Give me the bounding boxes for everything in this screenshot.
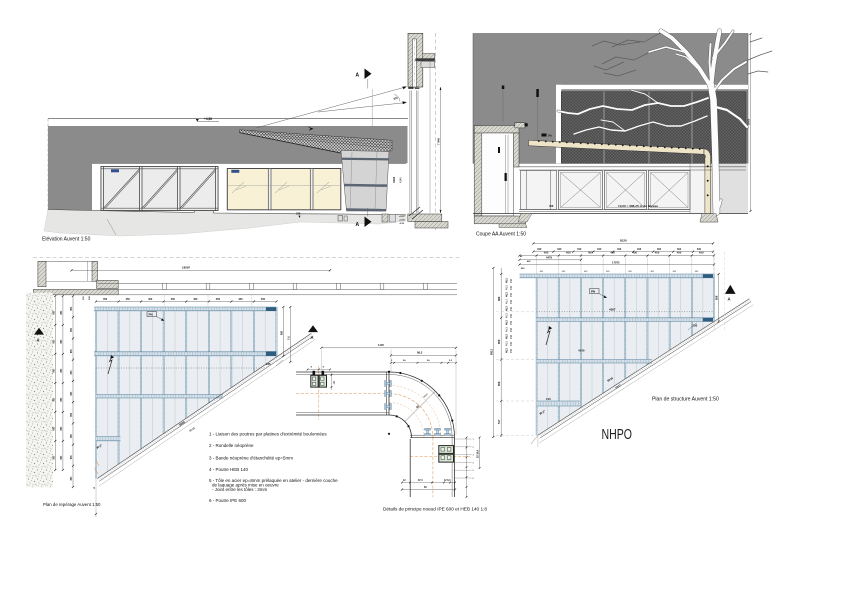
svg-text:52 18,4: 52 18,4 [477,449,480,458]
svg-text:450: 450 [510,334,513,339]
svg-text:Détails de principe noeud IPE: Détails de principe noeud IPE 600 et HEB… [383,507,487,512]
svg-text:4387: 4387 [609,308,616,312]
svg-text:450: 450 [632,251,637,255]
svg-text:A: A [356,73,360,79]
svg-text:450: 450 [510,341,513,346]
svg-text:450: 450 [510,313,513,318]
svg-text:+0,07: +0,07 [399,216,405,218]
svg-text:450: 450 [610,251,615,255]
svg-text:46,3: 46,3 [506,327,509,332]
svg-text:4463: 4463 [392,176,396,183]
svg-text:A: A [728,297,731,302]
svg-text:810: 810 [577,248,582,251]
svg-text:46,3: 46,3 [506,334,509,339]
svg-text:PN: PN [149,313,153,317]
svg-text:46,3: 46,3 [506,313,509,318]
svg-text:450: 450 [216,298,221,301]
svg-text:810: 810 [597,248,602,251]
svg-text:- Joint entre les tôles : 3mm: - Joint entre les tôles : 3mm [212,487,268,492]
svg-text:2863: 2863 [747,118,751,125]
svg-text:46,3: 46,3 [506,299,509,304]
svg-text:Coupe AA Auvent 1:50: Coupe AA Auvent 1:50 [476,232,526,238]
svg-text:89,3: 89,3 [417,351,423,355]
svg-text:450: 450 [699,251,704,255]
svg-text:±0,00 = 388,25 m du Niveau: ±0,00 = 388,25 m du Niveau [618,204,658,208]
svg-text:450: 450 [544,251,549,255]
svg-text:450: 450 [510,299,513,304]
svg-text:PN: PN [591,290,595,294]
svg-text:46,3: 46,3 [506,285,509,290]
svg-text:4140: 4140 [578,349,585,353]
svg-text:450: 450 [510,285,513,290]
svg-text:450: 450 [510,306,513,311]
svg-text:450: 450 [588,251,593,255]
svg-text:450: 450 [148,298,153,301]
svg-text:4479: 4479 [546,256,552,260]
svg-text:450: 450 [510,327,513,332]
svg-text:236: 236 [296,212,301,216]
svg-text:450: 450 [677,251,682,255]
svg-text:6 - Poutre IPE 600: 6 - Poutre IPE 600 [209,498,247,503]
svg-text:8120: 8120 [620,239,627,243]
svg-text:810: 810 [537,248,542,251]
svg-text:450: 450 [510,320,513,325]
svg-text:858: 858 [497,381,501,386]
svg-text:810: 810 [637,248,642,251]
svg-text:A: A [356,222,360,228]
svg-text:886: 886 [497,296,501,301]
svg-text:4 - Poutre HEB 140: 4 - Poutre HEB 140 [209,467,249,472]
svg-text:810: 810 [557,248,562,251]
svg-text:46,3: 46,3 [506,306,509,311]
svg-text:46,3: 46,3 [506,341,509,346]
svg-text:46,3: 46,3 [506,348,509,353]
svg-text:450: 450 [193,298,198,301]
svg-text:8913: 8913 [489,349,493,355]
svg-text:+0,00: +0,00 [399,220,405,222]
svg-text:450: 450 [126,298,131,301]
svg-text:858: 858 [497,339,501,344]
svg-text:Plan de structure Auvent 1:50: Plan de structure Auvent 1:50 [652,397,719,403]
svg-text:2 - Rondelle néoprène: 2 - Rondelle néoprène [209,443,254,448]
svg-text:810: 810 [617,248,622,251]
svg-text:450: 450 [103,298,108,301]
svg-text:NHPO: NHPO [602,426,633,443]
svg-text:236: 236 [266,362,271,366]
svg-text:-0,35: -0,35 [399,223,405,225]
svg-text:450: 450 [261,298,266,301]
svg-text:858: 858 [715,295,719,300]
svg-text:450: 450 [510,348,513,353]
svg-text:46,3: 46,3 [506,278,509,283]
svg-text:450: 450 [566,251,571,255]
svg-text:450: 450 [510,278,513,283]
svg-text:12 6,4: 12 6,4 [444,479,451,482]
svg-text:450: 450 [238,298,243,301]
svg-text:4140: 4140 [399,177,403,183]
svg-text:450: 450 [510,292,513,297]
svg-text:3 - Bande néoprène d'étanchéit: 3 - Bande néoprène d'étanchéité ep=5mm [209,456,293,461]
svg-text:456: 456 [549,204,554,208]
svg-text:18597: 18597 [182,265,190,269]
svg-text:37,3: 37,3 [418,480,423,482]
svg-text:450: 450 [655,251,660,255]
svg-text:1 - Liaison des poutres par pl: 1 - Liaison des poutres par platines d'e… [209,432,327,437]
svg-text:+4,88: +4,88 [204,117,212,121]
svg-text:450: 450 [171,298,176,301]
svg-text:7 940: 7 940 [436,138,440,145]
svg-text:1145: 1145 [378,343,384,347]
svg-text:A: A [37,338,40,343]
svg-text:Plan de repérage Auvent 1:50: Plan de repérage Auvent 1:50 [43,502,101,507]
svg-text:46,3: 46,3 [506,320,509,325]
svg-text:140: 140 [546,397,551,401]
svg-text:916: 916 [287,335,290,340]
svg-text:Elévation Auvent 1:50: Elévation Auvent 1:50 [42,237,91,243]
svg-text:46,3: 46,3 [506,292,509,297]
svg-text:890: 890 [280,330,283,335]
svg-text:517: 517 [497,419,501,424]
svg-text:17972: 17972 [612,260,620,264]
